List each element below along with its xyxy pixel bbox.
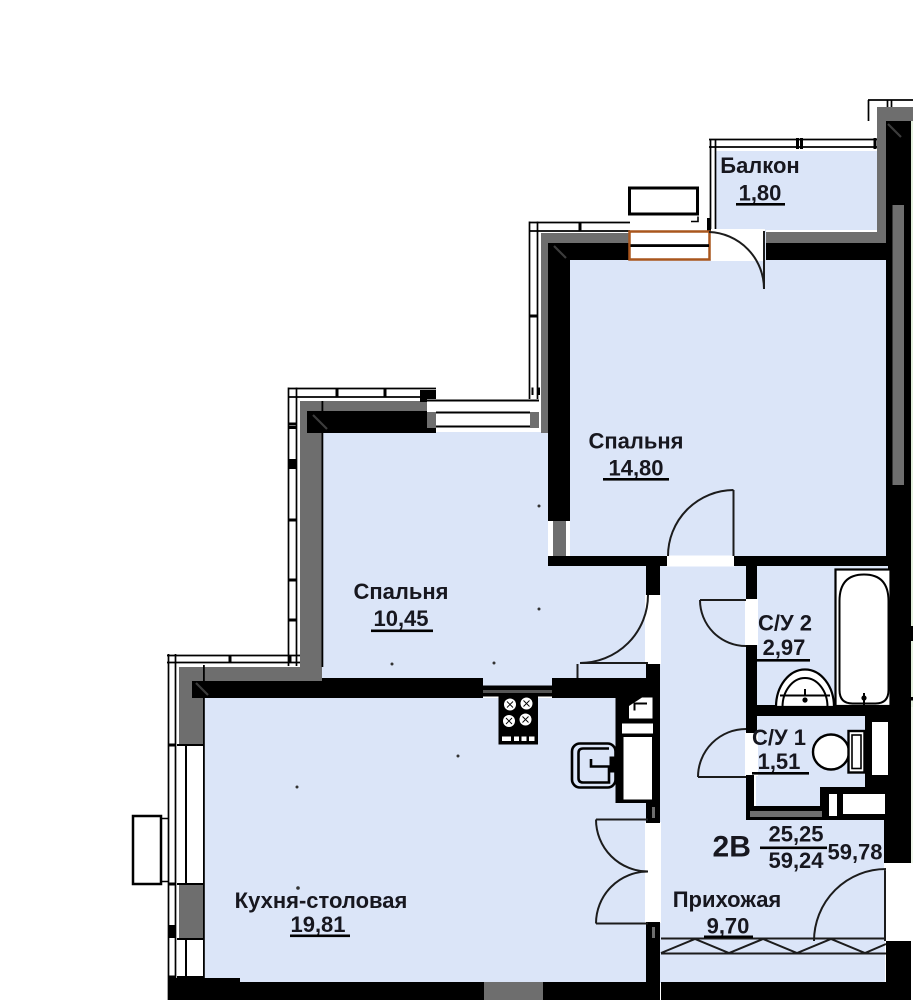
svg-text:1,80: 1,80 xyxy=(739,181,782,206)
svg-text:Спальня: Спальня xyxy=(353,579,448,604)
svg-text:59,24: 59,24 xyxy=(768,848,824,873)
svg-text:1,51: 1,51 xyxy=(758,749,801,774)
svg-text:С/У 1: С/У 1 xyxy=(752,725,806,750)
svg-text:Балкон: Балкон xyxy=(720,153,799,178)
svg-text:С/У 2: С/У 2 xyxy=(758,611,812,636)
svg-text:2В: 2В xyxy=(713,831,751,864)
svg-text:25,25: 25,25 xyxy=(768,822,823,847)
svg-text:59,78: 59,78 xyxy=(827,840,882,865)
svg-text:2,97: 2,97 xyxy=(763,635,806,660)
svg-text:14,80: 14,80 xyxy=(608,456,663,481)
svg-text:10,45: 10,45 xyxy=(373,606,428,631)
svg-text:Прихожая: Прихожая xyxy=(673,887,782,912)
svg-text:Кухня-столовая: Кухня-столовая xyxy=(235,888,408,913)
svg-text:19,81: 19,81 xyxy=(290,912,345,937)
svg-text:9,70: 9,70 xyxy=(707,914,750,939)
svg-text:Спальня: Спальня xyxy=(588,429,683,454)
